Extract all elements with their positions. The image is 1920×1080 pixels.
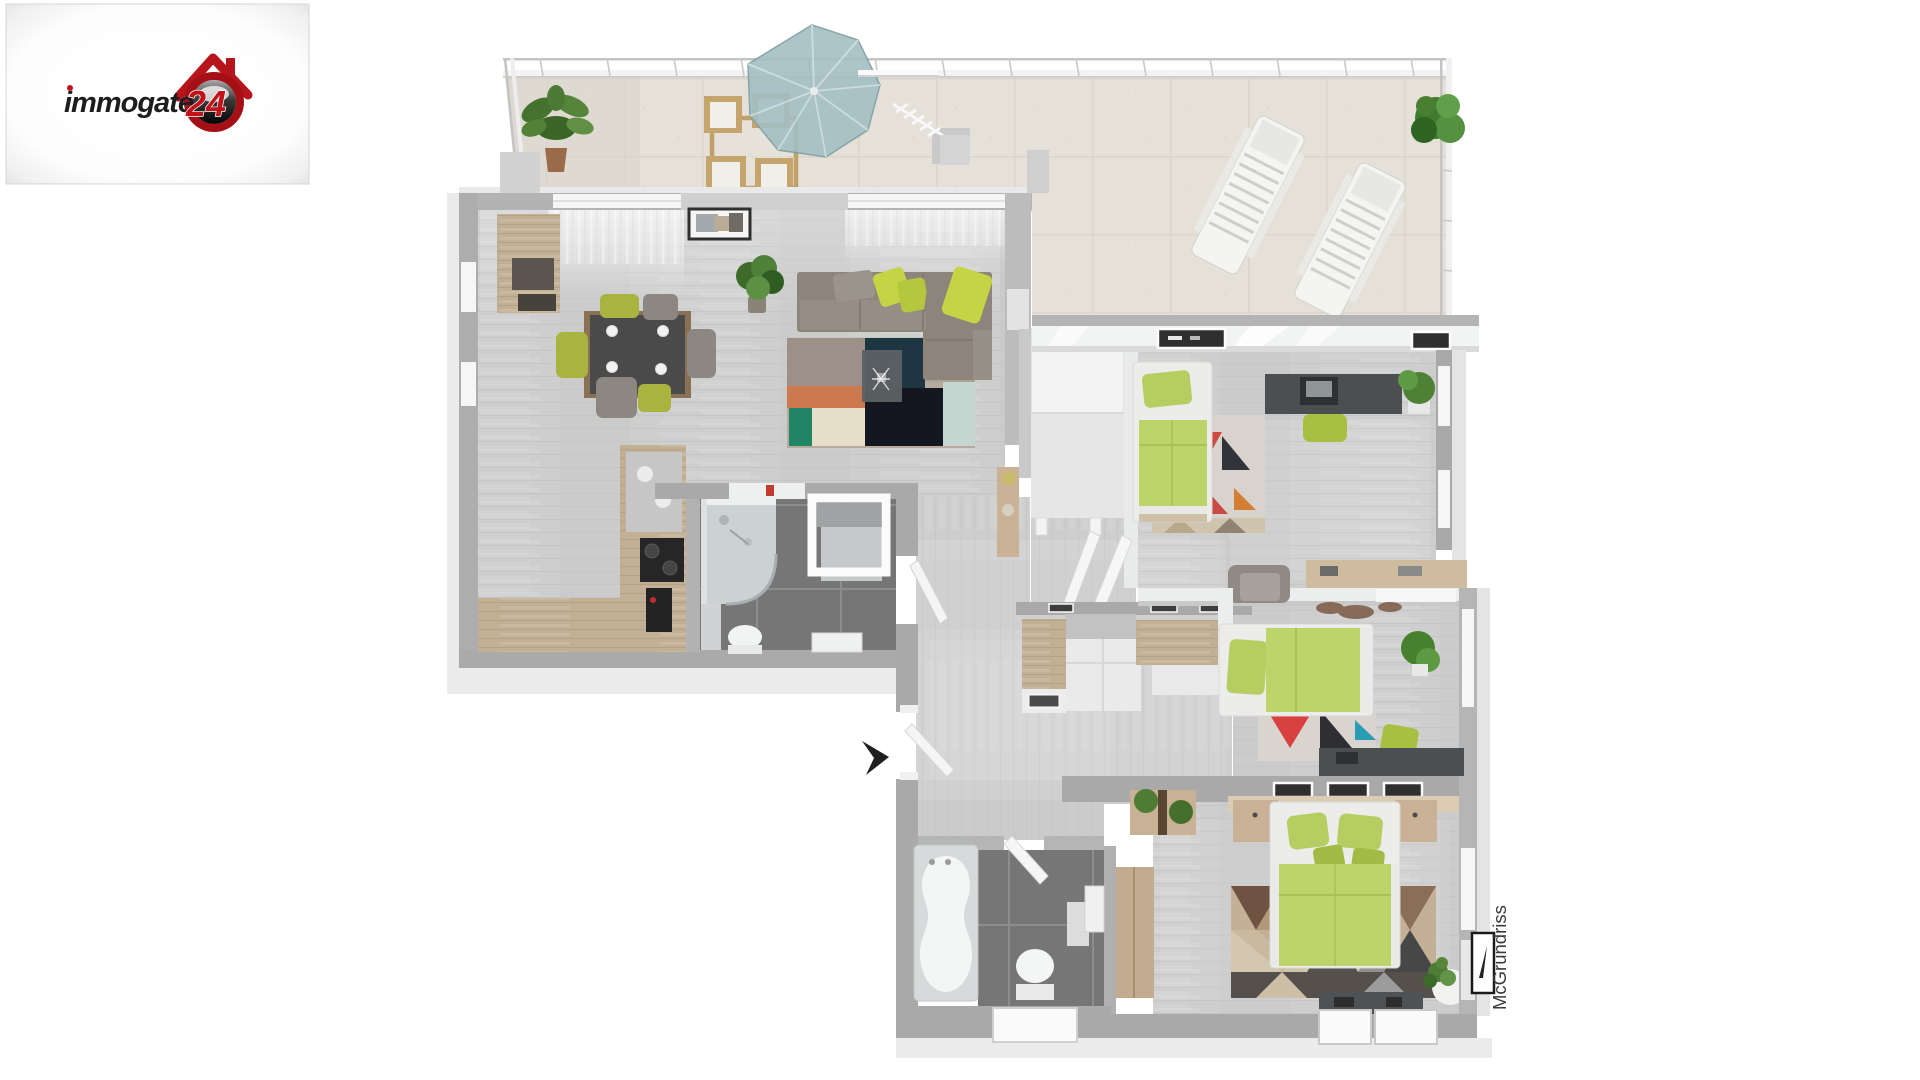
- svg-text:McGrundriss: McGrundriss: [1489, 905, 1510, 1010]
- svg-text:immogate: immogate: [64, 87, 194, 119]
- svg-text:24: 24: [185, 83, 226, 124]
